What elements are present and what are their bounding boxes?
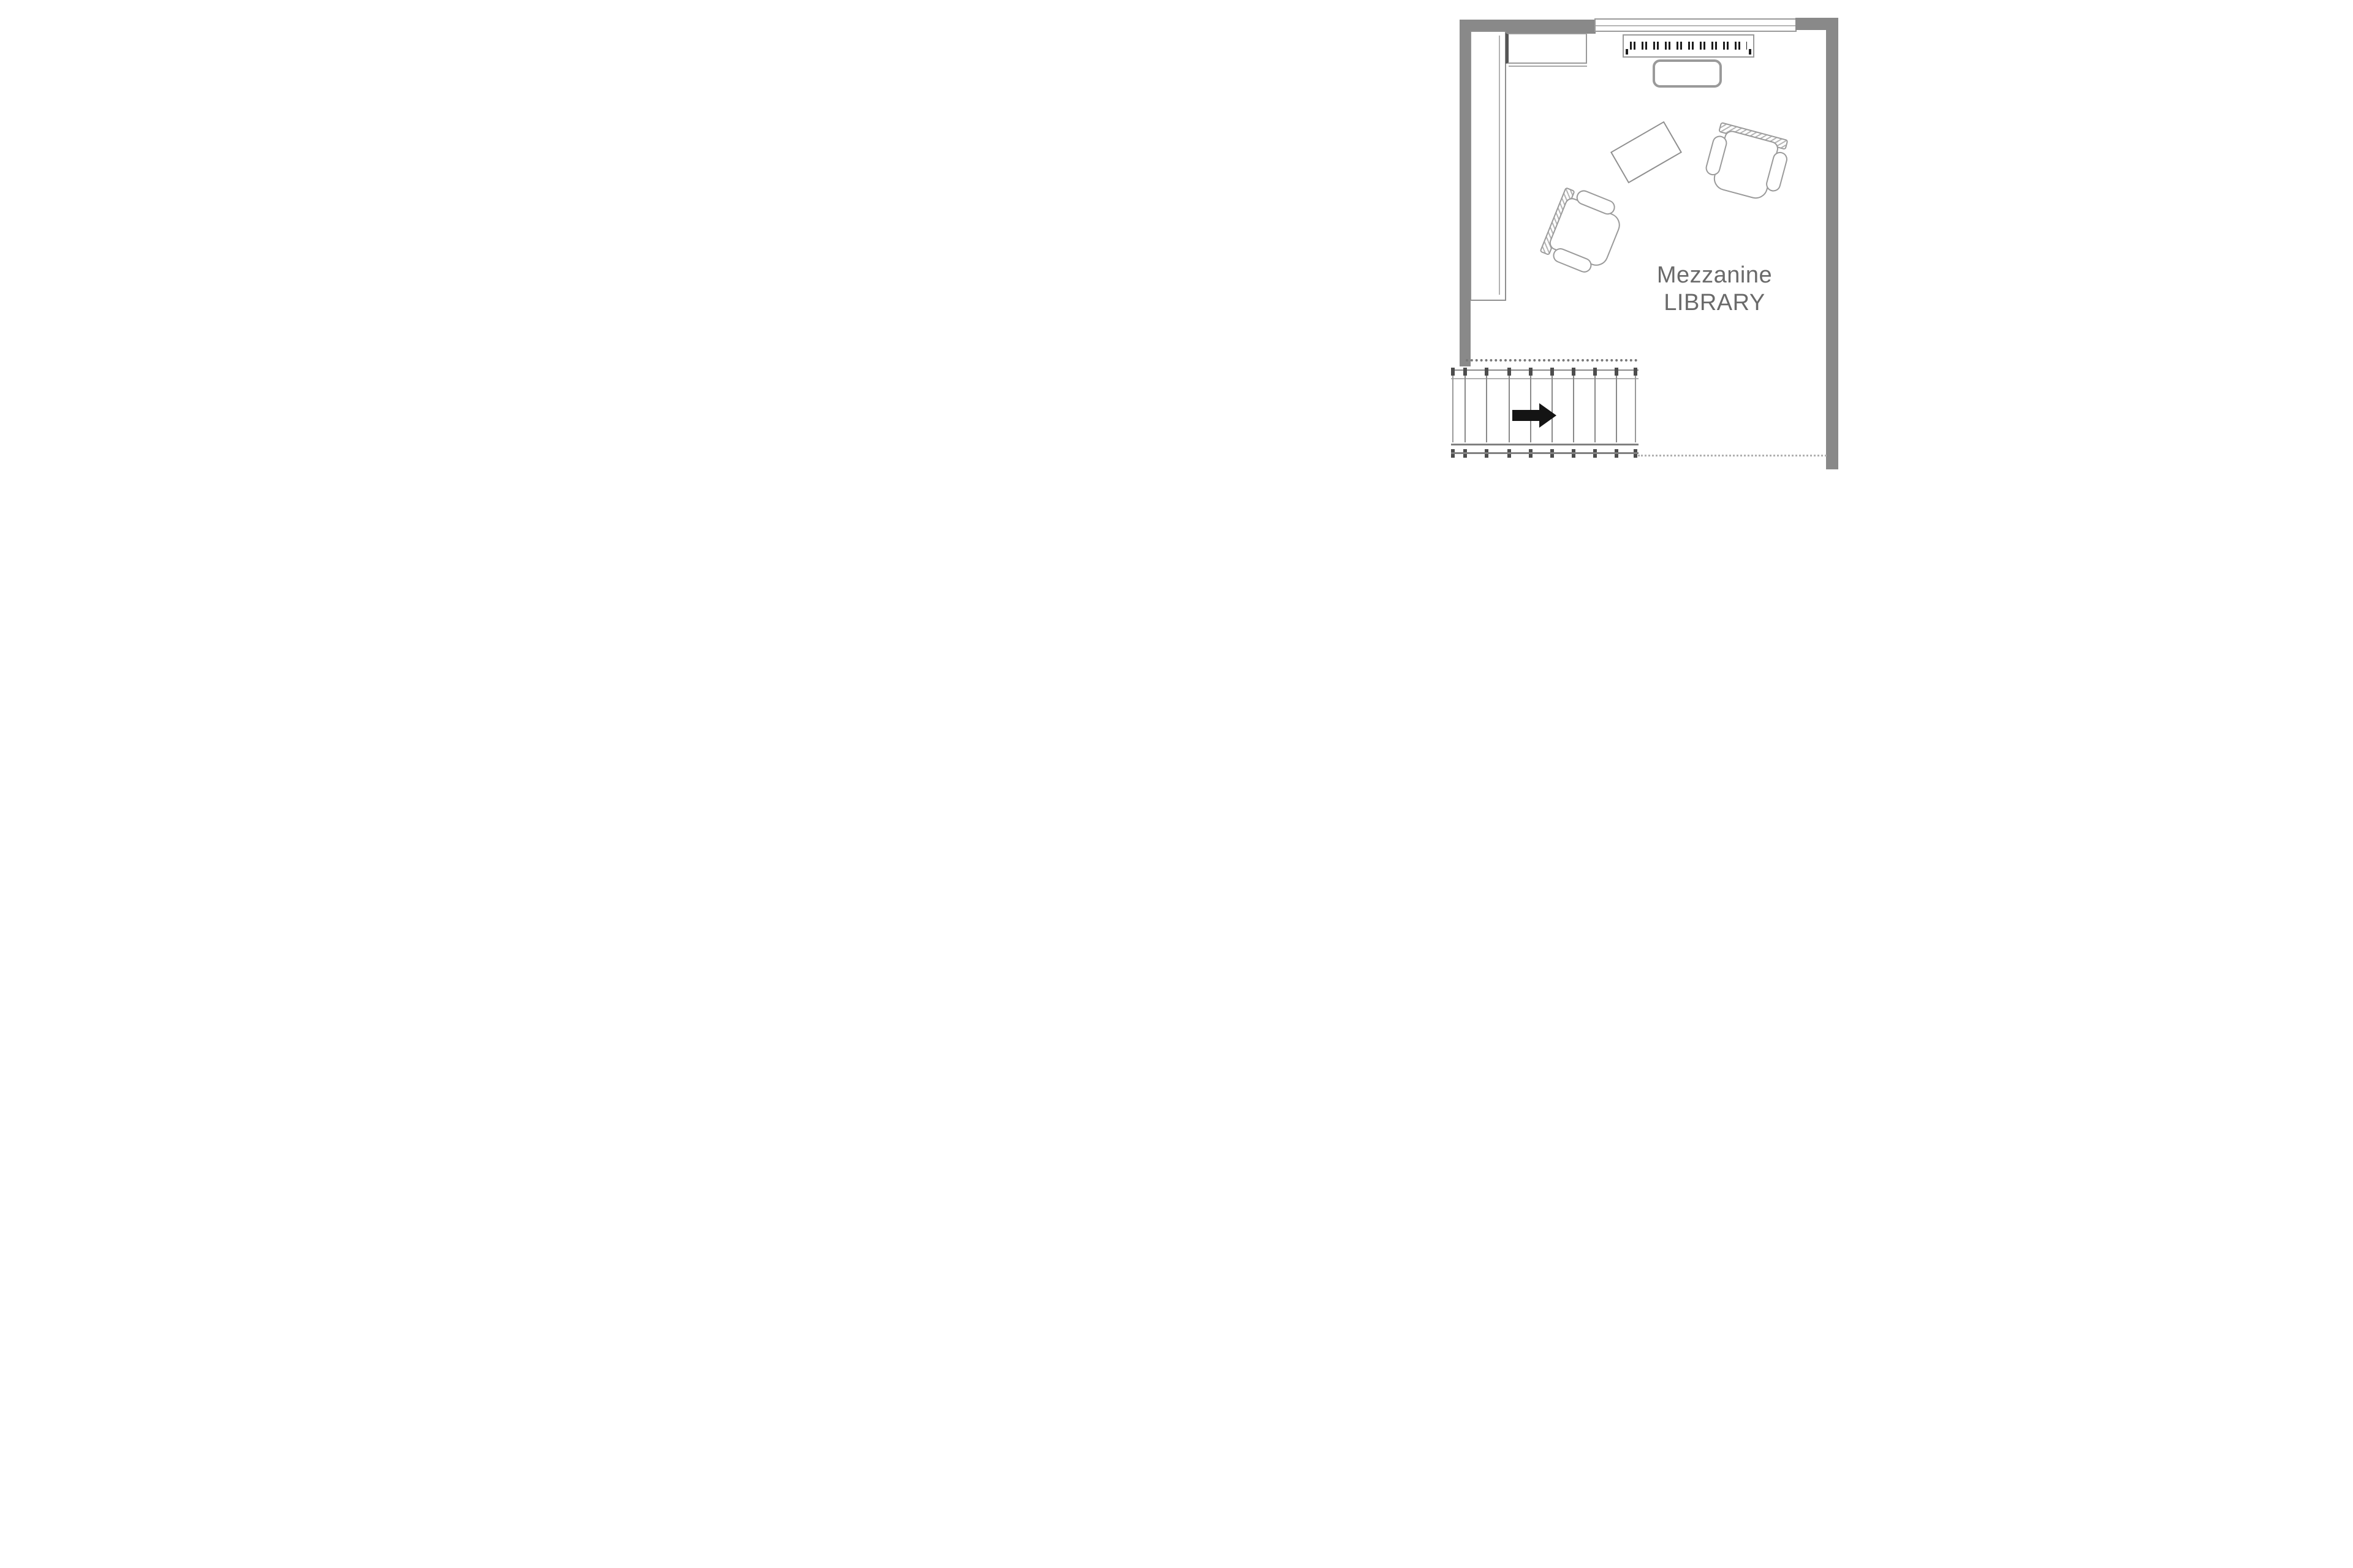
window-glass-line	[1596, 25, 1795, 26]
stair-guard-dotted-line	[1466, 359, 1637, 362]
wall-right	[1826, 18, 1838, 469]
armchair-icon	[1700, 121, 1793, 208]
staircase	[1451, 358, 1639, 460]
stair-rail-top-outer	[1451, 369, 1639, 371]
stair-direction-arrow-icon	[1512, 410, 1539, 421]
stair-rail-bottom-inner	[1451, 452, 1639, 454]
room-label-line2: LIBRARY	[1620, 289, 1809, 317]
wall-left	[1460, 20, 1471, 366]
stair-tread-line	[1616, 369, 1617, 442]
stair-stringer-right	[1635, 369, 1636, 442]
shelving-corner-mark-right	[1749, 49, 1751, 55]
armchair-icon	[1538, 183, 1631, 281]
stair-tread-line	[1486, 369, 1487, 442]
room-label: Mezzanine LIBRARY	[1620, 262, 1809, 317]
stair-tread-line	[1594, 369, 1596, 442]
stair-tread-line	[1573, 369, 1574, 442]
stair-direction-arrow-head-icon	[1539, 403, 1556, 428]
shelving-unit-icon	[1623, 34, 1754, 58]
bookshelf-shelf-line	[1499, 36, 1500, 295]
shelving-corner-mark-left	[1626, 49, 1628, 55]
shelving-ticks-pattern	[1630, 42, 1747, 50]
mezzanine-edge-dotted-line	[1638, 455, 1827, 456]
stair-tread-line	[1464, 369, 1466, 442]
bench-icon	[1653, 59, 1722, 88]
stair-tread-line	[1509, 369, 1510, 442]
window-top	[1594, 18, 1797, 32]
stair-rail-bottom-outer	[1451, 444, 1639, 445]
cabinet-shadow-line	[1509, 66, 1587, 67]
cabinet-icon	[1506, 33, 1587, 64]
room-label-line1: Mezzanine	[1620, 262, 1809, 289]
side-table-icon	[1610, 121, 1682, 184]
bookshelf-icon	[1470, 31, 1506, 301]
stair-stringer-left	[1452, 369, 1453, 442]
stair-rail-top-inner	[1451, 378, 1639, 379]
stair-tread-line	[1530, 369, 1531, 442]
floorplan-canvas: Mezzanine LIBRARY	[0, 0, 2353, 1568]
